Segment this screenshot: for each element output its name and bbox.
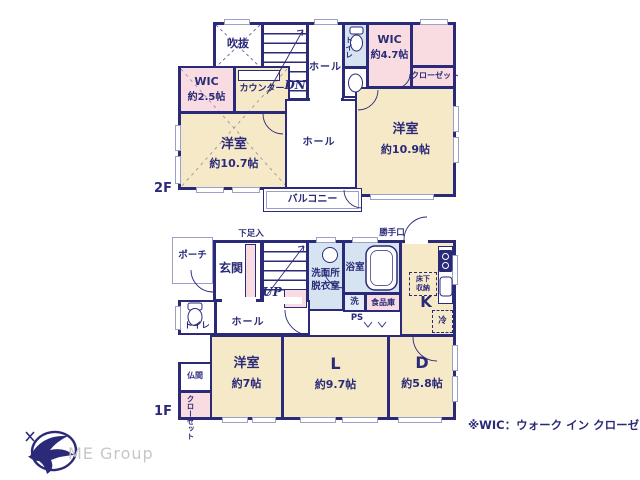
label-wic25-size: 約2.5帖 (178, 92, 235, 104)
window-1f (252, 417, 276, 423)
label-room107-size: 約10.7帖 (178, 158, 290, 171)
window-2f (232, 187, 260, 193)
label-kitchen: K (406, 294, 446, 311)
window-2f (314, 19, 338, 25)
opening-backdoor (405, 238, 428, 244)
label-2f-closet: クローゼット (411, 71, 456, 80)
label-ps: PS (346, 314, 368, 324)
label-pantry: 食品庫 (364, 298, 402, 307)
label-living-size: 約9.7帖 (282, 379, 389, 392)
label-room109-size: 約10.9帖 (355, 144, 456, 157)
label-2f-hall-upper: ホール (304, 62, 347, 74)
label-1f-toilet: トイレ (177, 322, 217, 332)
label-bedroom7-name: 洋室 (210, 357, 283, 372)
label-back-door: 勝手口 (374, 229, 410, 239)
label-up: UP (258, 286, 286, 300)
label-1f-hall: ホール (226, 317, 270, 329)
floor-label-1f: 1F (150, 405, 176, 420)
label-bedroom7-size: 約7帖 (210, 378, 283, 391)
label-wic47-name: WIC (367, 34, 412, 47)
label-washroom-2: 脱衣室 (305, 282, 346, 293)
window-1f (342, 417, 378, 423)
label-shoe-box: 下足入 (232, 230, 270, 240)
label-1f-closet: クローゼット (185, 395, 206, 419)
label-dining-name: D (388, 354, 456, 372)
label-underfloor-2: 収納 (409, 284, 437, 292)
counter-desk-icon (238, 70, 280, 81)
label-wic25-name: WIC (180, 76, 233, 89)
label-underfloor-1: 床下 (409, 275, 437, 283)
label-dn: DN (281, 79, 309, 93)
logo-text: ME Group (68, 444, 154, 463)
window-1f (222, 417, 248, 423)
floor-label-2f: 2F (150, 182, 176, 197)
label-bath: 浴室 (340, 263, 370, 274)
label-room107-name: 洋室 (178, 138, 290, 153)
window-2f (420, 19, 448, 25)
room-2f-wic25 (178, 66, 235, 113)
label-living-name: L (282, 355, 389, 373)
window-1f (316, 237, 336, 243)
label-fridge: 冷 (432, 317, 453, 327)
window-1f (300, 417, 336, 423)
opening-genkan-hall (222, 297, 256, 304)
room-2f-bedroom-109 (355, 87, 456, 197)
floorplan-canvas: 2F 吹抜 DN ホール トイレ WIC 約4.7帖 クローゼット WIC 約2… (0, 0, 640, 480)
window-2f (224, 19, 250, 25)
label-2f-hall-mid: ホール (294, 137, 344, 149)
wic-note: ※WIC：ウォーク イン クローゼット (468, 419, 634, 432)
label-2f-toilet: トイレ (344, 27, 355, 67)
label-void: 吹抜 (213, 38, 263, 51)
label-room109-name: 洋室 (355, 123, 456, 138)
window-2f (370, 194, 434, 200)
label-butsuma: 仏間 (178, 371, 212, 380)
opening-2f-hall (310, 96, 341, 103)
room-2f-hall-upper (307, 22, 344, 100)
window-2f (196, 187, 224, 193)
label-washer: 洗 (343, 298, 366, 308)
room-2f-wic47-annex (411, 22, 456, 67)
label-porch: ポーチ (172, 251, 213, 262)
window-1f (452, 255, 458, 285)
logo-mark (26, 432, 34, 441)
label-genkan: 玄関 (211, 262, 251, 276)
label-balcony: バルコニー (263, 194, 362, 206)
label-wic47-size: 約4.7帖 (364, 50, 415, 62)
label-dining-size: 約5.8帖 (388, 378, 456, 391)
window-1f (398, 417, 442, 423)
